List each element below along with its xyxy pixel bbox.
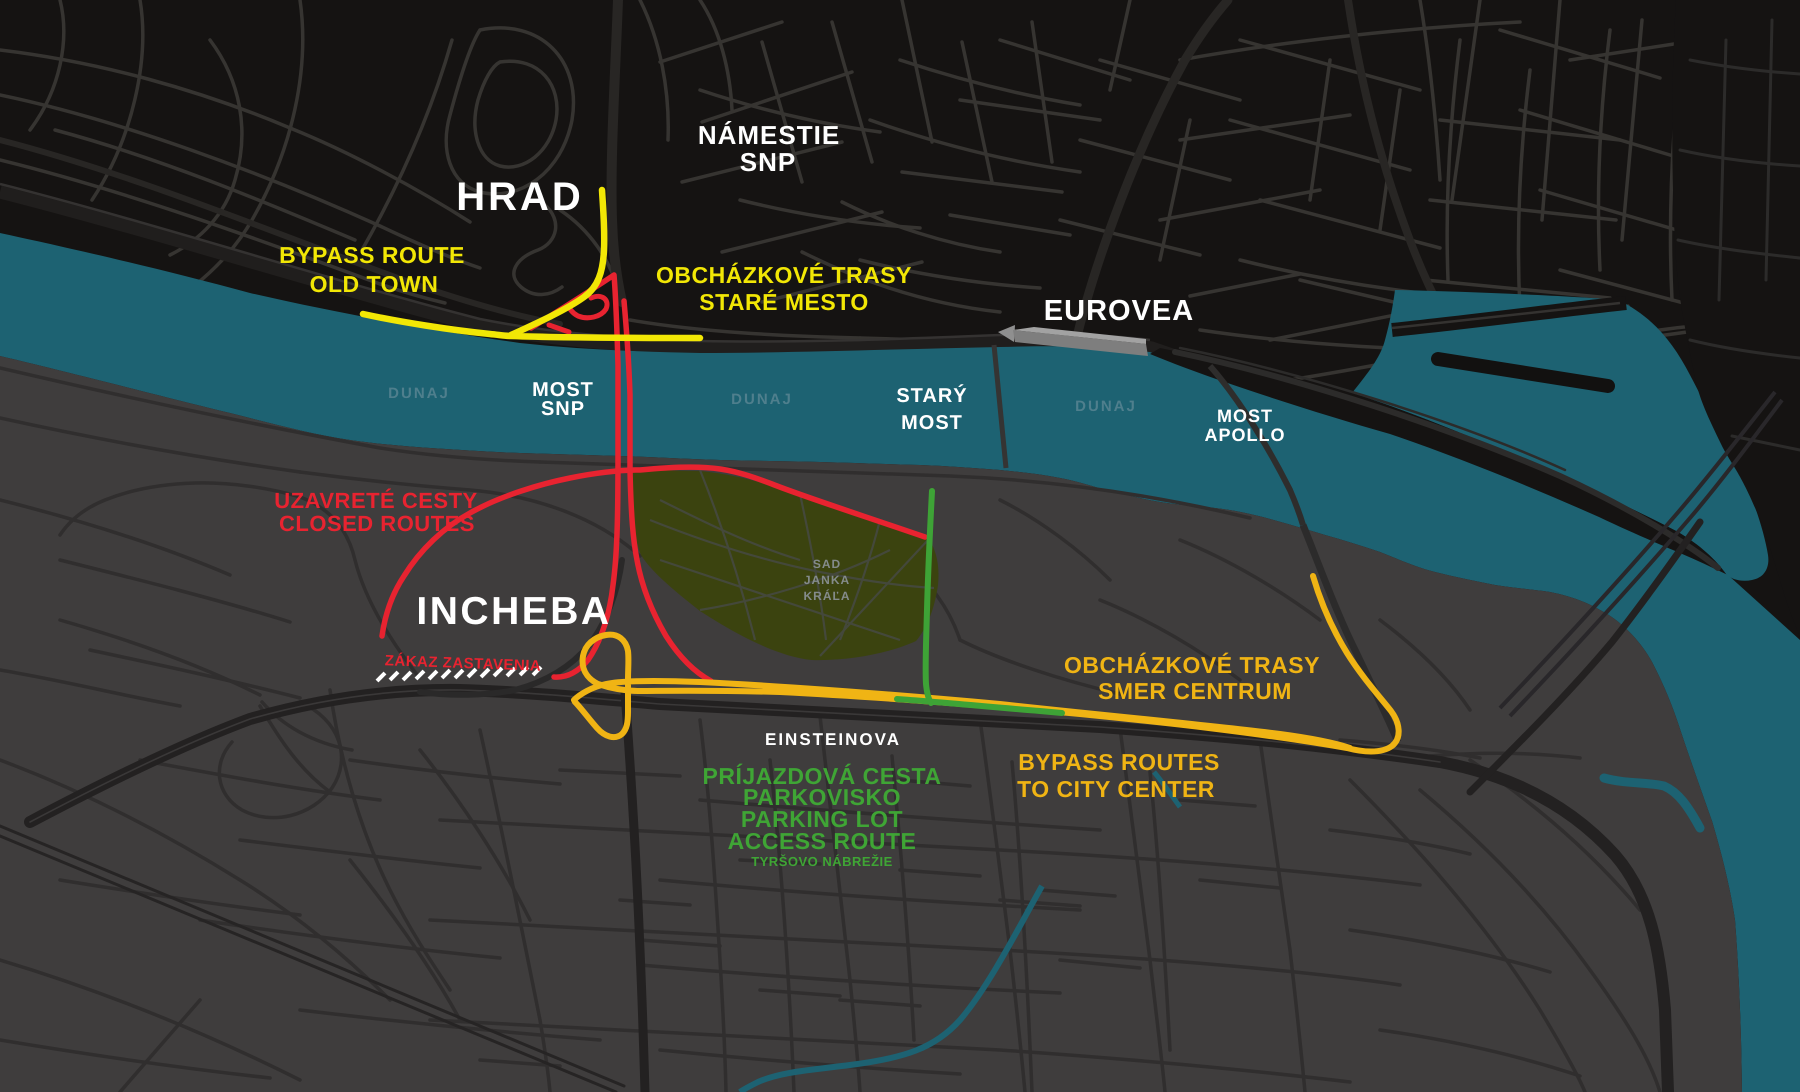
svg-text:OBCHÁZKOVÉ TRASY: OBCHÁZKOVÉ TRASY <box>656 262 912 288</box>
svg-text:BYPASS ROUTE: BYPASS ROUTE <box>279 242 465 268</box>
svg-text:APOLLO: APOLLO <box>1205 425 1286 445</box>
svg-text:SMER CENTRUM: SMER CENTRUM <box>1098 678 1292 704</box>
svg-text:MOST: MOST <box>1217 406 1273 426</box>
svg-text:TYRŠOVO NÁBREŽIE: TYRŠOVO NÁBREŽIE <box>751 854 893 869</box>
svg-text:SAD: SAD <box>813 557 841 571</box>
svg-text:SNP: SNP <box>541 398 585 420</box>
svg-text:DUNAJ: DUNAJ <box>388 385 450 402</box>
svg-text:CLOSED ROUTES: CLOSED ROUTES <box>279 511 475 536</box>
svg-text:MOST: MOST <box>901 412 963 434</box>
svg-text:TO CITY CENTER: TO CITY CENTER <box>1017 776 1215 802</box>
svg-text:STARÉ MESTO: STARÉ MESTO <box>699 289 869 315</box>
svg-text:OLD TOWN: OLD TOWN <box>310 271 439 297</box>
svg-text:EINSTEINOVA: EINSTEINOVA <box>765 730 901 749</box>
svg-text:HRAD: HRAD <box>456 175 584 219</box>
svg-text:DUNAJ: DUNAJ <box>731 391 793 408</box>
svg-text:SNP: SNP <box>740 147 796 177</box>
svg-text:ACCESS ROUTE: ACCESS ROUTE <box>728 828 917 854</box>
svg-text:OBCHÁZKOVÉ TRASY: OBCHÁZKOVÉ TRASY <box>1064 652 1320 678</box>
svg-text:EUROVEA: EUROVEA <box>1044 295 1194 327</box>
svg-text:STARÝ: STARÝ <box>896 384 967 407</box>
svg-text:BYPASS ROUTES: BYPASS ROUTES <box>1018 749 1220 775</box>
svg-text:DUNAJ: DUNAJ <box>1075 398 1137 415</box>
svg-text:UZAVRETÉ CESTY: UZAVRETÉ CESTY <box>274 488 477 513</box>
svg-text:JANKA: JANKA <box>804 573 850 587</box>
svg-text:KRÁĽA: KRÁĽA <box>804 589 851 603</box>
svg-text:INCHEBA: INCHEBA <box>416 590 611 633</box>
svg-text:NÁMESTIE: NÁMESTIE <box>698 120 840 150</box>
